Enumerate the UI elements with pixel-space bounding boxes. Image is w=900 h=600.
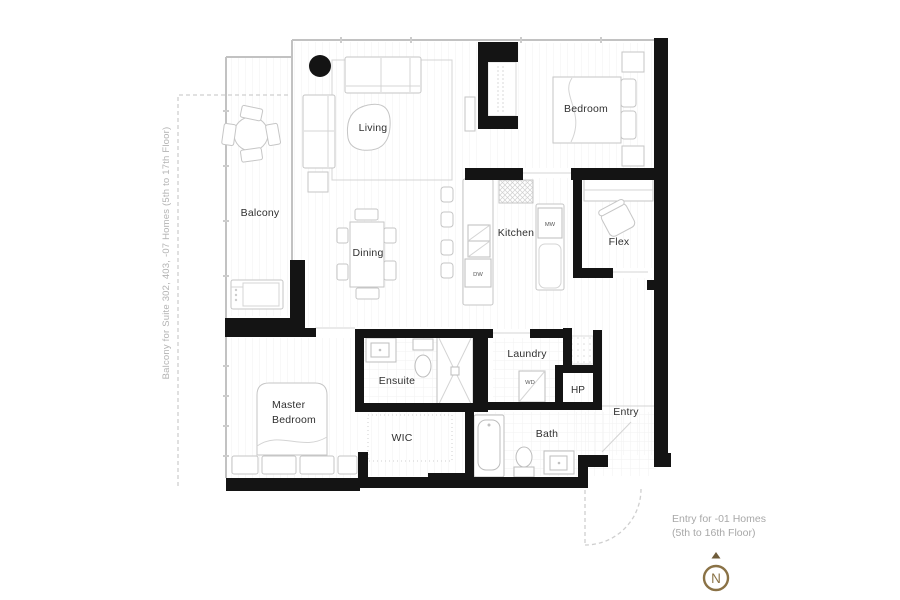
room-label-wic: WIC (391, 432, 412, 444)
ensuite-shower (437, 334, 473, 408)
kitchen-sink (468, 225, 490, 257)
pillow (621, 111, 636, 139)
suite-entry-door-arc (585, 489, 641, 545)
room-label-master-line2: Bedroom (272, 414, 316, 426)
north-compass: N (704, 552, 728, 590)
pillow (621, 79, 636, 107)
ensuite-sink (366, 338, 396, 362)
entry-note: Entry for -01 Homes (5th to 16th Floor) (672, 513, 766, 539)
pillow (338, 456, 357, 474)
patio-table (234, 117, 268, 151)
compass-north-label: N (711, 571, 721, 586)
room-label-laundry: Laundry (507, 348, 547, 360)
room-label-bath: Bath (536, 428, 558, 440)
sofa-top (345, 57, 421, 93)
compass-needle-icon (712, 552, 721, 559)
bedroom-closet-interior (488, 62, 516, 116)
room-label-living: Living (359, 122, 388, 134)
bath-toilet (514, 447, 534, 477)
room-label-ensuite: Ensuite (379, 375, 415, 387)
cooktop (499, 180, 533, 203)
bath-sink (544, 451, 574, 474)
entry-note-line1: Entry for -01 Homes (672, 513, 766, 525)
room-label-dining: Dining (353, 247, 384, 259)
side-note: Balcony for Suite 302, 403, -07 Homes (5… (161, 127, 172, 380)
nightstand (622, 146, 644, 166)
pillow (300, 456, 334, 474)
nightstand (622, 52, 644, 72)
room-label-hp: HP (571, 385, 585, 396)
structural-column (309, 55, 331, 77)
room-label-flex: Flex (609, 236, 630, 248)
room-label-entry: Entry (613, 406, 639, 418)
appliance-label-wd: WD (525, 380, 535, 386)
floor-plan-canvas: Living Bedroom Balcony Dining Kitchen Fl… (0, 0, 900, 600)
floor-plan-page: Living Bedroom Balcony Dining Kitchen Fl… (0, 0, 900, 600)
room-label-kitchen: Kitchen (498, 227, 534, 239)
room-label-bedroom: Bedroom (564, 103, 608, 115)
bathtub (474, 415, 504, 477)
appliance-label-dw: DW (473, 272, 483, 278)
room-label-balcony: Balcony (241, 207, 280, 219)
bbq-cart (231, 280, 283, 309)
appliance-label-mw: MW (545, 222, 556, 228)
pillow (262, 456, 296, 474)
entry-note-line2: (5th to 16th Floor) (672, 527, 755, 539)
room-label-master-line1: Master (272, 399, 306, 411)
side-note-text: Balcony for Suite 302, 403, -07 Homes (5… (161, 127, 172, 380)
console-table (465, 97, 475, 131)
pillow (232, 456, 258, 474)
